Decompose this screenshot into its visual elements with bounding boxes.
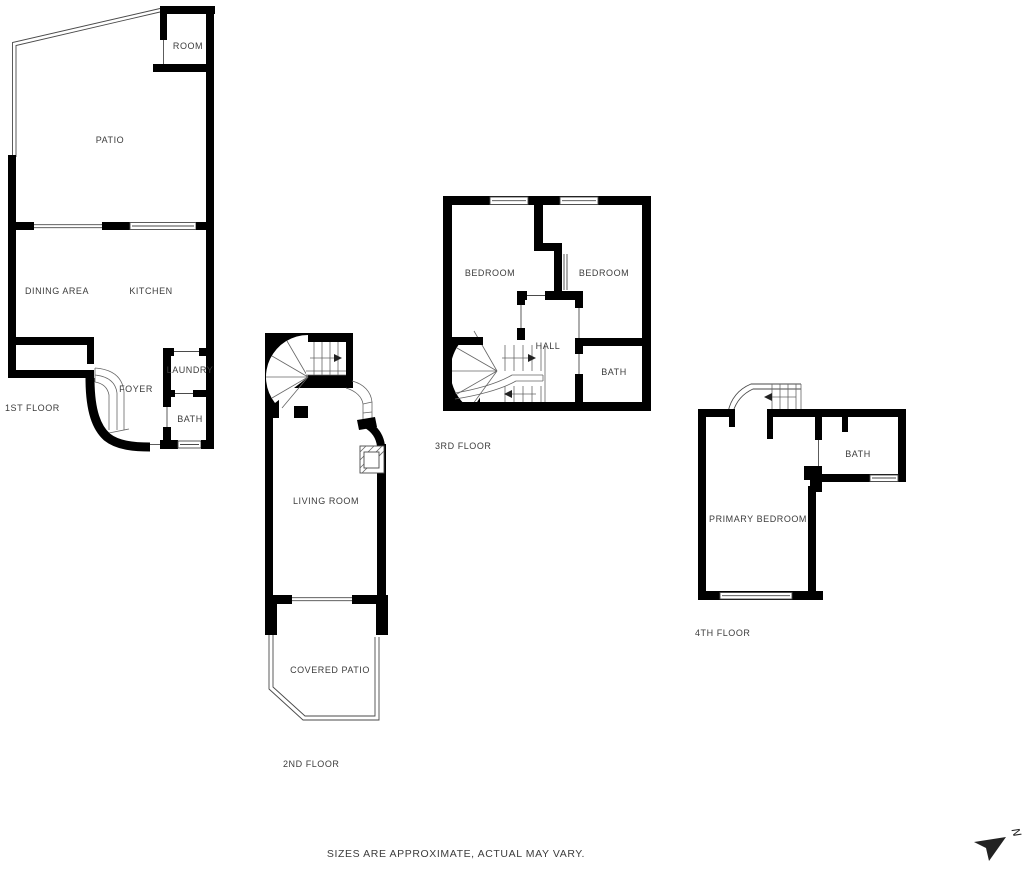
room-label-bedroom-left: BEDROOM bbox=[465, 268, 515, 278]
north-arrow-icon bbox=[974, 837, 1006, 861]
floor-label-3rd: 3RD FLOOR bbox=[435, 441, 491, 451]
room-label-kitchen: KITCHEN bbox=[129, 286, 172, 296]
floor-2-plan bbox=[265, 333, 388, 720]
room-label-bath-1st: BATH bbox=[177, 414, 203, 424]
room-label-primary-bedroom: PRIMARY BEDROOM bbox=[709, 514, 807, 524]
floor-label-2nd: 2ND FLOOR bbox=[283, 759, 339, 769]
room-label-laundry: LAUNDRY bbox=[167, 365, 214, 375]
room-label-room: ROOM bbox=[173, 41, 203, 51]
room-label-bath-3rd: BATH bbox=[601, 367, 627, 377]
floor-4-plan bbox=[698, 384, 906, 600]
floor-label-1st: 1ST FLOOR bbox=[5, 403, 60, 413]
floor-1-plan bbox=[8, 6, 215, 449]
floorplan-graphics bbox=[0, 0, 1032, 872]
room-label-dining-area: DINING AREA bbox=[25, 286, 89, 296]
room-label-patio: PATIO bbox=[96, 135, 124, 145]
room-label-bedroom-right: BEDROOM bbox=[579, 268, 629, 278]
room-label-hall: HALL bbox=[536, 341, 561, 351]
floor-label-4th: 4TH FLOOR bbox=[695, 628, 750, 638]
room-label-foyer: FOYER bbox=[119, 384, 153, 394]
room-label-living-room: LIVING ROOM bbox=[293, 496, 359, 506]
disclaimer-text: SIZES ARE APPROXIMATE, ACTUAL MAY VARY. bbox=[327, 848, 585, 860]
floor-3-plan bbox=[443, 196, 651, 411]
room-label-covered-patio: COVERED PATIO bbox=[290, 665, 370, 675]
room-label-bath-4th: BATH bbox=[845, 449, 871, 459]
